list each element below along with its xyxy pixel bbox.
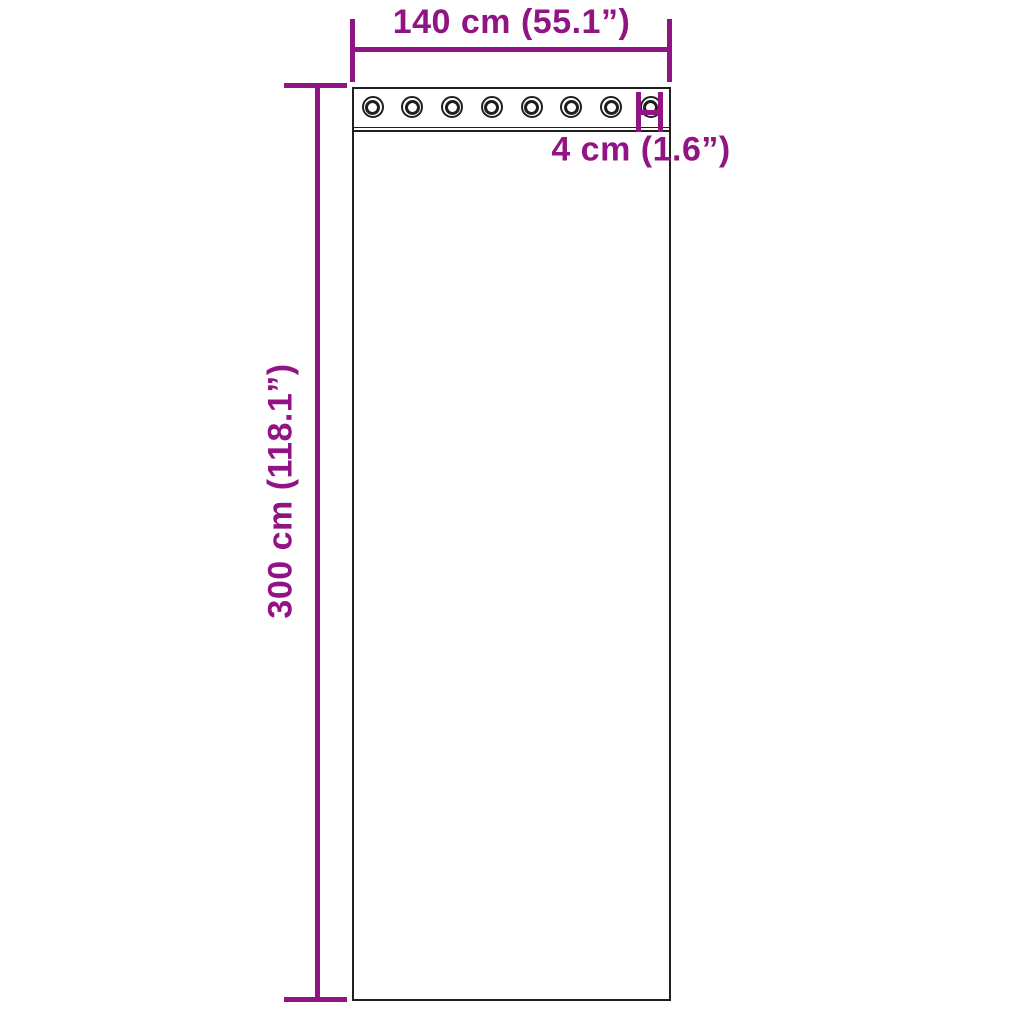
grommet (441, 96, 463, 118)
curtain-dimension-diagram: 140 cm (55.1”) 300 cm (118.1”) 4 cm (1.6… (0, 0, 1024, 1024)
height-dimension-line (315, 85, 320, 1002)
grommet (560, 96, 582, 118)
width-dimension-line (352, 47, 671, 52)
grommet-inner-ring (524, 100, 539, 115)
grommet (521, 96, 543, 118)
grommet-inner-ring (445, 100, 460, 115)
grommet-inner-ring (365, 100, 380, 115)
height-dimension-tick-top (284, 83, 347, 88)
width-dimension-label: 140 cm (55.1”) (352, 3, 671, 42)
grommet (481, 96, 503, 118)
height-dimension-tick-bottom (284, 997, 347, 1002)
curtain-panel (352, 87, 671, 1001)
grommet-dimension-label: 4 cm (1.6”) (551, 131, 730, 170)
grommet-row (354, 89, 669, 999)
grommet-inner-ring (564, 100, 579, 115)
grommet (600, 96, 622, 118)
grommet-inner-ring (484, 100, 499, 115)
height-dimension-label: 300 cm (118.1”) (262, 363, 301, 618)
grommet (362, 96, 384, 118)
grommet (401, 96, 423, 118)
grommet-inner-ring (604, 100, 619, 115)
grommet-dimension-connector (636, 110, 663, 115)
grommet-inner-ring (405, 100, 420, 115)
